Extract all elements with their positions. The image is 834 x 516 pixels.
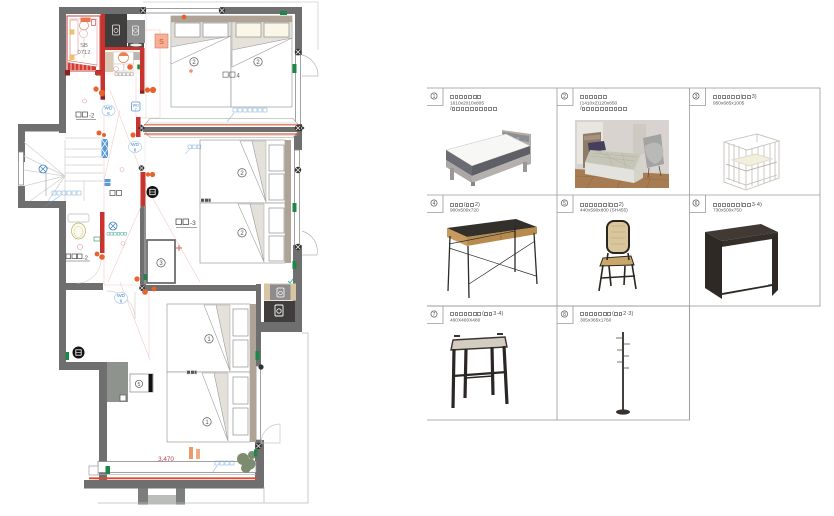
- svg-text:3,470: 3,470: [158, 456, 174, 463]
- svg-text:-3: -3: [190, 220, 196, 227]
- svg-text:7: 7: [433, 312, 436, 318]
- svg-text:5: 5: [138, 382, 141, 388]
- svg-text:SB: SB: [80, 43, 88, 49]
- svg-text:0712: 0712: [78, 50, 91, 56]
- svg-text:5: 5: [563, 201, 566, 207]
- svg-text:7: 7: [135, 108, 137, 112]
- svg-text:-2: -2: [89, 114, 95, 120]
- svg-text:3: 3: [695, 94, 698, 100]
- svg-text:6: 6: [695, 201, 698, 207]
- svg-text:1: 1: [433, 94, 436, 100]
- svg-text:4: 4: [433, 201, 436, 207]
- svg-text:-2: -2: [83, 256, 88, 262]
- svg-text:8: 8: [563, 312, 566, 318]
- svg-text:S: S: [159, 39, 164, 46]
- svg-text:2: 2: [563, 94, 566, 100]
